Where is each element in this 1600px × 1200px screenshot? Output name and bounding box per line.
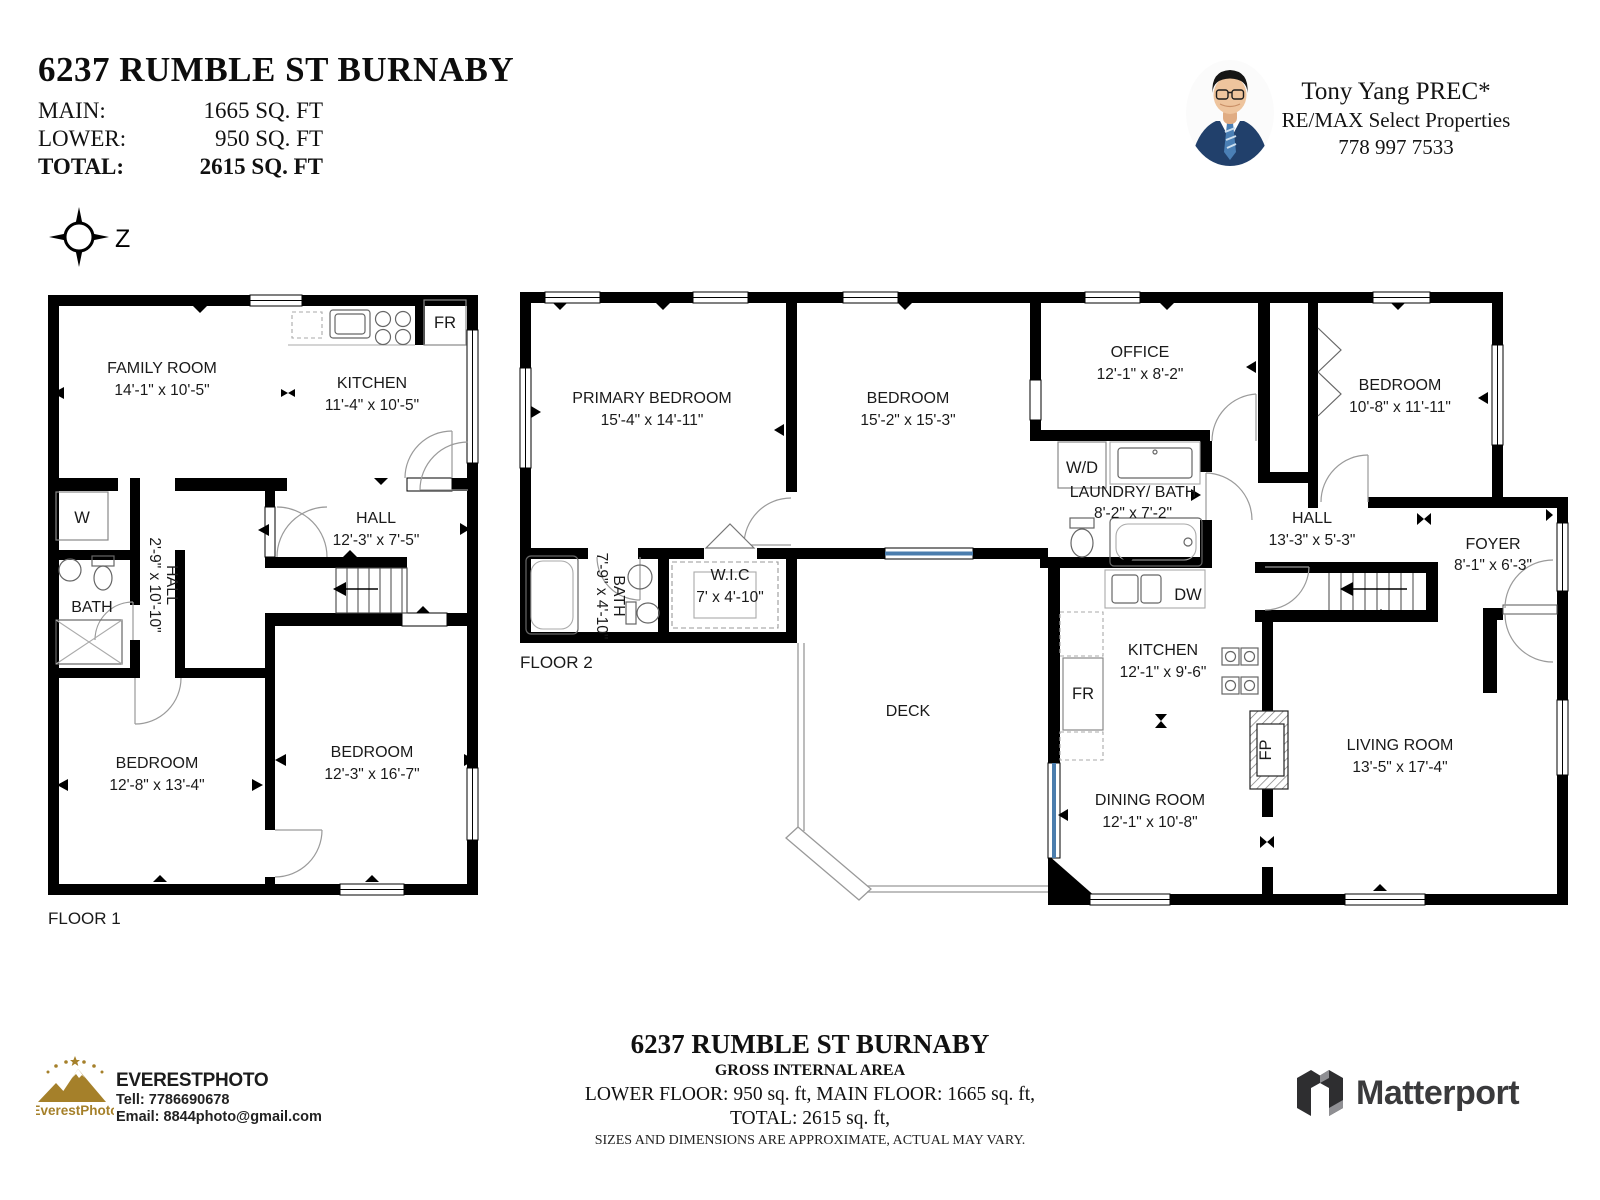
room-dims: 12'-3" x 16'-7" bbox=[324, 766, 419, 783]
room-label: BATH bbox=[71, 599, 112, 616]
room-label: KITCHEN bbox=[337, 375, 407, 392]
everestphoto-logo-text: EverestPhoto bbox=[36, 1103, 114, 1118]
dishwasher-label: DW bbox=[1174, 586, 1202, 604]
summary-floor-areas: LOWER FLOOR: 950 sq. ft, MAIN FLOOR: 166… bbox=[460, 1082, 1160, 1107]
gross-area-summary: 6237 RUMBLE ST BURNABY GROSS INTERNAL AR… bbox=[460, 1028, 1160, 1151]
floor2-plan: PRIMARY BEDROOM 15'-4" x 14'-11" BEDROOM… bbox=[520, 292, 1568, 905]
room-label: OFFICE bbox=[1111, 344, 1170, 361]
washer-dryer-label: W/D bbox=[1066, 459, 1098, 477]
photographer-brand: EVERESTPHOTO bbox=[116, 1070, 268, 1092]
glass-door-accent bbox=[1052, 763, 1056, 858]
room-dims: 11'-4" x 10'-5" bbox=[325, 397, 419, 414]
glass-door-accent bbox=[885, 552, 973, 556]
floor2-labels: PRIMARY BEDROOM 15'-4" x 14'-11" BEDROOM… bbox=[520, 344, 1532, 831]
room-label: HALL bbox=[163, 565, 180, 605]
fridge-label: FR bbox=[1072, 685, 1094, 703]
room-label: DECK bbox=[886, 703, 931, 720]
closet-bifold-symbol bbox=[1318, 328, 1341, 372]
floor2-stairs bbox=[1329, 573, 1413, 610]
room-label: BEDROOM bbox=[867, 390, 950, 407]
floor1-tag: FLOOR 1 bbox=[48, 909, 121, 928]
room-label: DINING ROOM bbox=[1095, 792, 1205, 809]
room-label: HALL bbox=[1292, 510, 1332, 527]
floor-plan-canvas: FAMILY ROOM 14'-1" x 10'-5" KITCHEN 11'-… bbox=[0, 0, 1600, 1200]
floor1-stairs bbox=[333, 568, 407, 613]
room-label: FOYER bbox=[1465, 536, 1520, 553]
room-dims: 15'-4" x 14'-11" bbox=[601, 412, 704, 429]
room-dims: 12'-1" x 9'-6" bbox=[1120, 664, 1207, 681]
room-dims: 12'-1" x 10'-8" bbox=[1102, 814, 1197, 831]
room-dims: 7'-9" x 4'-10" bbox=[593, 553, 610, 640]
room-label: PRIMARY BEDROOM bbox=[572, 390, 731, 407]
floor1-walls bbox=[48, 295, 478, 895]
room-label: KITCHEN bbox=[1128, 642, 1198, 659]
room-dims: 13'-3" x 5'-3" bbox=[1269, 532, 1356, 549]
summary-subtitle: GROSS INTERNAL AREA bbox=[460, 1060, 1160, 1082]
room-label: FAMILY ROOM bbox=[107, 360, 217, 377]
room-dims: 8'-2" x 7'-2" bbox=[1094, 505, 1172, 522]
room-dims: 7' x 4'-10" bbox=[696, 589, 763, 606]
room-label: BATH bbox=[610, 575, 627, 616]
room-dims: 10'-8" x 11'-11" bbox=[1349, 399, 1451, 416]
summary-total: TOTAL: 2615 sq. ft, bbox=[460, 1107, 1160, 1131]
room-label: BEDROOM bbox=[331, 744, 414, 761]
summary-title: 6237 RUMBLE ST BURNABY bbox=[460, 1028, 1160, 1060]
room-dims: 14'-1" x 10'-5" bbox=[114, 382, 209, 399]
everestphoto-logo-icon: EverestPhoto bbox=[36, 1056, 114, 1122]
photographer-phone: Tell: 7786690678 bbox=[116, 1092, 229, 1108]
floor2-tag: FLOOR 2 bbox=[520, 653, 593, 672]
photographer-credit: EverestPhoto EVERESTPHOTO Tell: 77866906… bbox=[36, 1056, 114, 1127]
matterport-logo-icon bbox=[1296, 1066, 1344, 1120]
matterport-logo-text: Matterport bbox=[1356, 1074, 1519, 1113]
matterport-credit: Matterport bbox=[1296, 1066, 1519, 1120]
photographer-email: Email: 8844photo@gmail.com bbox=[116, 1109, 322, 1125]
room-dims: 12'-1" x 8'-2" bbox=[1097, 366, 1184, 383]
floor1-plan: FAMILY ROOM 14'-1" x 10'-5" KITCHEN 11'-… bbox=[48, 295, 478, 928]
room-dims: 2'-9" x 10'-10" bbox=[146, 537, 163, 632]
floorplan-page: 6237 RUMBLE ST BURNABY MAIN: 1665 SQ. FT… bbox=[0, 0, 1600, 1200]
room-label: W.I.C bbox=[710, 567, 749, 584]
room-dims: 15'-2" x 15'-3" bbox=[860, 412, 955, 429]
washer-label: W bbox=[74, 509, 90, 527]
room-dims: 12'-3" x 7'-5" bbox=[333, 532, 420, 549]
room-dims: 12'-8" x 13'-4" bbox=[109, 777, 204, 794]
room-label: LIVING ROOM bbox=[1347, 737, 1454, 754]
closet-bifold-symbol bbox=[1318, 372, 1341, 416]
floor2-deck-outline bbox=[786, 643, 1048, 900]
room-label: BEDROOM bbox=[116, 755, 199, 772]
summary-disclaimer: SIZES AND DIMENSIONS ARE APPROXIMATE, AC… bbox=[460, 1131, 1160, 1151]
room-label: LAUNDRY/ BATH bbox=[1070, 484, 1197, 501]
room-dims: 8'-1" x 6'-3" bbox=[1454, 557, 1532, 574]
front-door-leaf bbox=[1503, 605, 1557, 614]
fridge-label: FR bbox=[434, 314, 456, 332]
room-dims: 13'-5" x 17'-4" bbox=[1352, 759, 1447, 776]
floor1-doors bbox=[95, 431, 468, 877]
fireplace-label: FP bbox=[1257, 739, 1275, 760]
room-label: BEDROOM bbox=[1359, 377, 1442, 394]
room-label: HALL bbox=[356, 510, 396, 527]
